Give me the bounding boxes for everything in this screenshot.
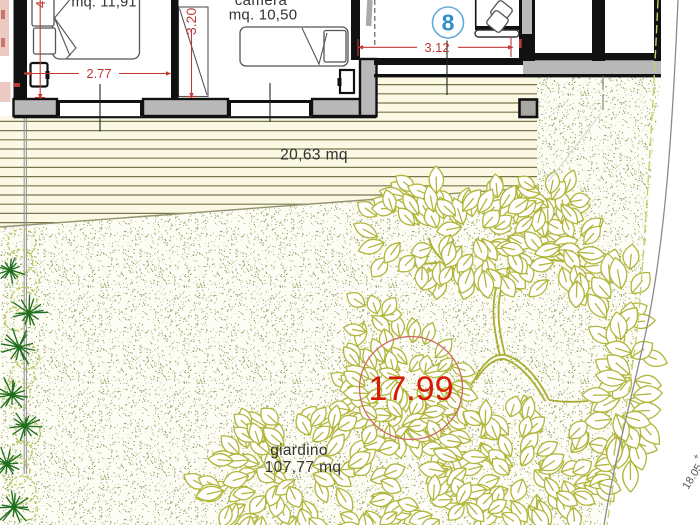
svg-text:20,63 mq: 20,63 mq: [280, 147, 348, 164]
svg-text:3.12: 3.12: [424, 40, 449, 55]
svg-text:4.30: 4.30: [33, 0, 48, 8]
svg-text:8: 8: [442, 10, 455, 36]
svg-text:mq. 11,91: mq. 11,91: [71, 0, 136, 11]
svg-text:giardino: giardino: [270, 442, 328, 459]
svg-text:17.99: 17.99: [368, 370, 453, 408]
svg-text:107,77 mq: 107,77 mq: [265, 459, 342, 476]
svg-text:mq. 10,50: mq. 10,50: [229, 7, 298, 24]
svg-text:2.77: 2.77: [86, 66, 111, 81]
svg-text:3.20: 3.20: [183, 8, 199, 35]
